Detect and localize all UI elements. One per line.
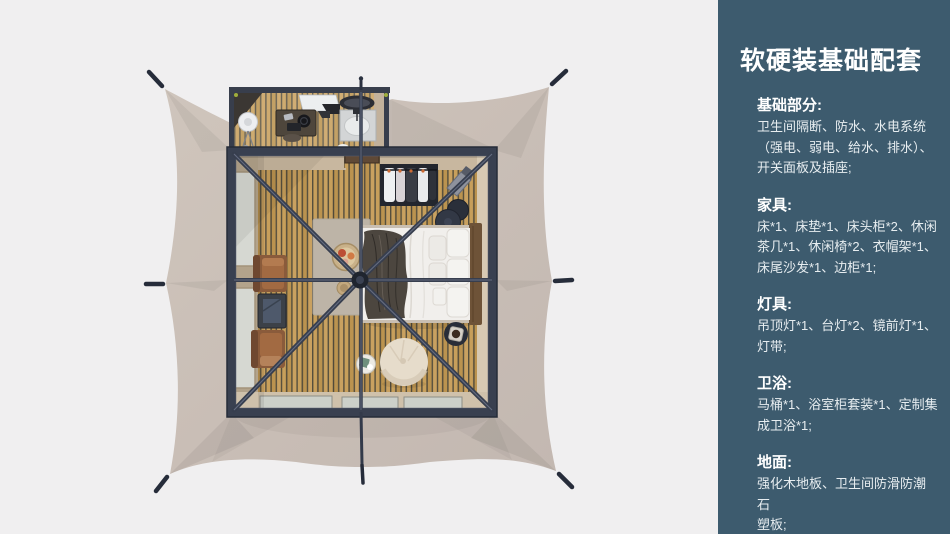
section-body: 马桶*1、浴室柜套装*1、定制集 成卫浴*1;: [757, 395, 938, 436]
section-lighting: 灯具: 吊顶灯*1、台灯*2、镜前灯*1、 灯带;: [757, 296, 938, 357]
bathroom: [229, 87, 390, 151]
section-bathroom: 卫浴: 马桶*1、浴室柜套装*1、定制集 成卫浴*1;: [757, 375, 938, 436]
section-body: 吊顶灯*1、台灯*2、镜前灯*1、 灯带;: [757, 316, 938, 357]
section-heading: 家具:: [757, 197, 938, 214]
bed: [360, 223, 482, 329]
section-basics: 基础部分: 卫生间隔断、防水、水电系统 （强电、弱电、给水、排水）、 开关面板及…: [757, 97, 938, 179]
section-heading: 灯具:: [757, 296, 938, 313]
headboard: [469, 223, 482, 325]
section-heading: 基础部分:: [757, 97, 938, 114]
section-body: 床*1、床垫*1、床头柜*2、休闲 茶几*1、休闲椅*2、衣帽架*1、 床尾沙发…: [757, 217, 938, 279]
section-flooring: 地面: 强化木地板、卫生间防滑防潮石 塑板;: [757, 454, 938, 534]
side-table: [258, 294, 286, 328]
slide: 软硬装基础配套 基础部分: 卫生间隔断、防水、水电系统 （强电、弱电、给水、排水…: [0, 0, 950, 534]
bathroom-mirror: [340, 96, 375, 111]
stool-with-tray: [444, 322, 468, 346]
lounge-chair-1: [253, 255, 287, 292]
corner-accent: [384, 93, 388, 97]
section-body: 强化木地板、卫生间防滑防潮石 塑板;: [757, 474, 938, 534]
panel-title: 软硬装基础配套: [740, 46, 942, 77]
bathroom-sink: [340, 109, 376, 141]
tent-top-view-render: [0, 0, 718, 534]
section-heading: 地面:: [757, 454, 938, 471]
section-furniture: 家具: 床*1、床垫*1、床头柜*2、休闲 茶几*1、休闲椅*2、衣帽架*1、 …: [757, 197, 938, 279]
section-heading: 卫浴:: [757, 375, 938, 392]
clothes-rack: [380, 164, 438, 206]
info-panel: 软硬装基础配套 基础部分: 卫生间隔断、防水、水电系统 （强电、弱电、给水、排水…: [718, 0, 950, 534]
corner-accent: [234, 93, 238, 97]
section-body: 卫生间隔断、防水、水电系统 （强电、弱电、给水、排水）、 开关面板及插座;: [757, 117, 938, 179]
